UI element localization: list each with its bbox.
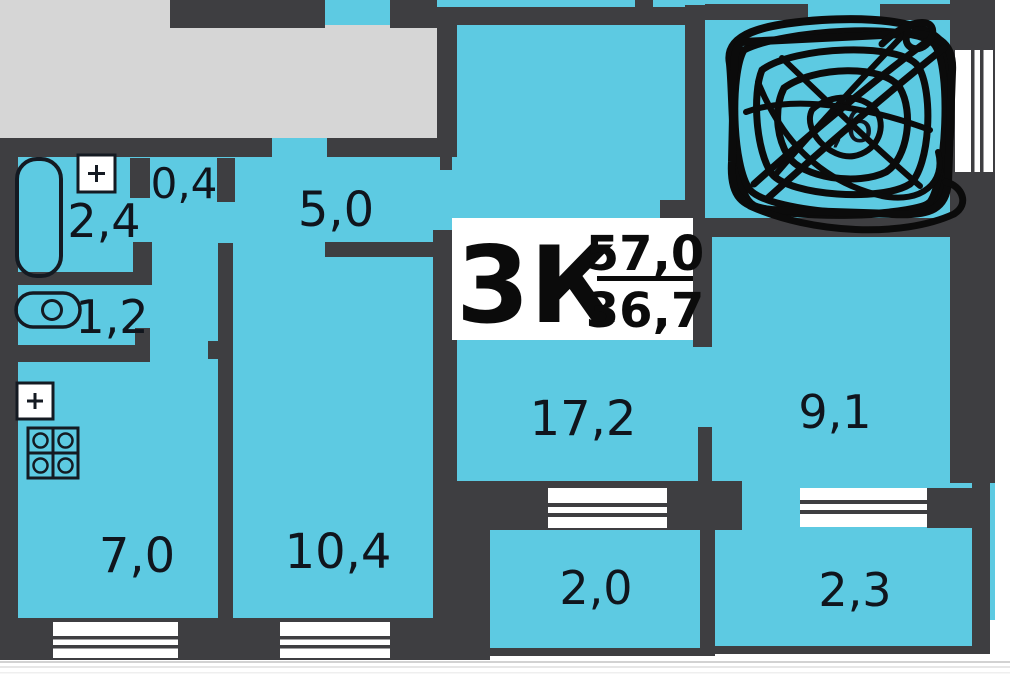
bedroom-area-label: 10,4 [285, 524, 392, 580]
wall-closet-right [217, 158, 235, 202]
wc-area-label: 1,2 [75, 290, 148, 344]
balcony-right-area-label: 2,3 [818, 563, 891, 617]
right-wall-window [955, 50, 993, 172]
title-box: 3К 57,0 36,7 [452, 218, 704, 347]
hallway-area-label: 5,0 [298, 182, 374, 238]
bedroom2-balcony-window [800, 488, 927, 527]
wall-kitchen-top-west [0, 345, 150, 362]
wall-hall-east-upper [437, 7, 457, 152]
wall-bedroom2-window-pier [927, 488, 975, 528]
storage-area-label: 0,4 [151, 159, 218, 208]
bedroom-window [280, 622, 390, 658]
bathroom-area-label: 2,4 [67, 194, 140, 248]
balcony-right-rail [712, 646, 990, 654]
wall-scribroom-west [685, 5, 705, 232]
living-area-label: 17,2 [530, 391, 637, 447]
stove-icon [28, 428, 78, 478]
area-fraction-bar [597, 276, 693, 281]
wall-door-stub [440, 152, 452, 170]
balcony-left-rail [487, 648, 700, 656]
kitchen-area-label: 7,0 [99, 528, 175, 584]
balcony-right-side-rail [972, 483, 990, 654]
total-area-value: 57,0 [586, 226, 704, 282]
wall-stair-south-west [0, 138, 272, 157]
wall-mid-vertical [218, 243, 233, 620]
wall-living-top [440, 7, 700, 25]
bedroom2-area-label: 9,1 [798, 385, 871, 439]
wall-hall-south [325, 242, 437, 257]
wall-scribroom-top-west [705, 4, 808, 20]
wall-closet-left [130, 158, 150, 198]
scan-artifact-lines [0, 661, 1010, 674]
kitchen-window [53, 622, 178, 658]
floor-plan: 0,4 2,4 5,0 1,2 7,0 10,4 17,2 9,1 2,0 2,… [0, 0, 1024, 680]
living-area-value: 36,7 [586, 283, 704, 339]
wall-balcony-divider [700, 530, 715, 656]
wall-top-stub [635, 0, 653, 13]
balcony-left-area-label: 2,0 [559, 561, 632, 615]
vent-plus-bath-icon [78, 155, 115, 192]
living-balcony-window [548, 488, 667, 528]
vent-plus-kitchen-icon [17, 383, 53, 419]
